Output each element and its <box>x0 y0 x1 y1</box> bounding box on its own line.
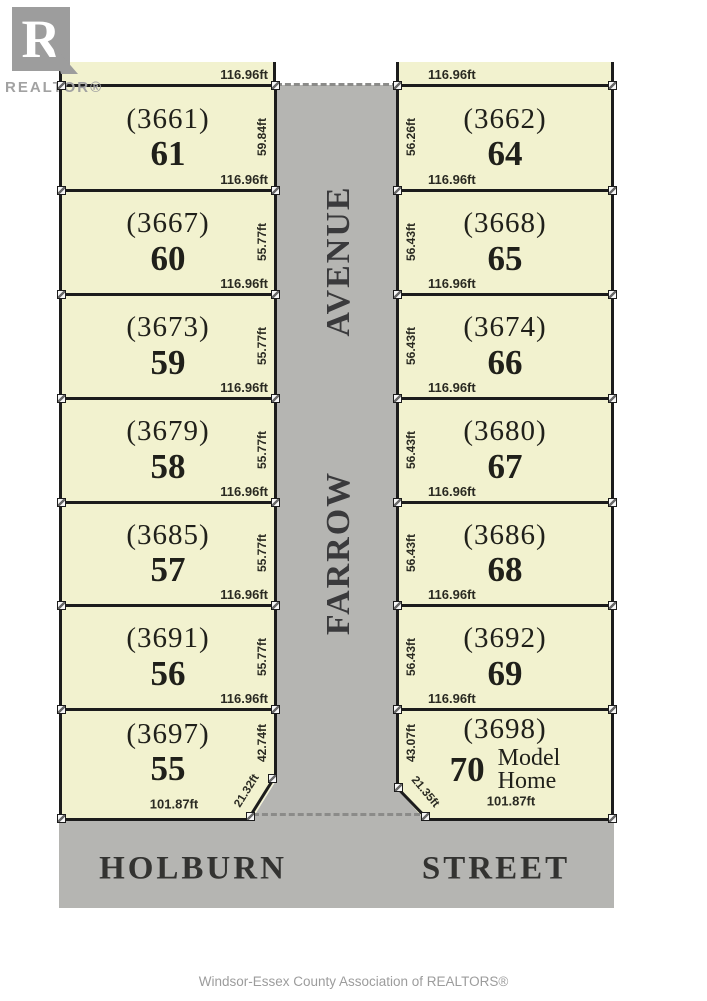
lot-plan: (3662) <box>463 104 546 134</box>
survey-pin-icon <box>271 290 280 299</box>
depth-dim: 55.77ft <box>251 192 273 292</box>
lot-plan: (3679) <box>126 416 209 446</box>
lot-plan: (3667) <box>126 208 209 238</box>
lot-plan: (3686) <box>463 520 546 550</box>
lot-plan: (3697) <box>126 719 209 749</box>
frontage-dim: 116.96ft <box>428 691 588 706</box>
depth-dim: 56.43ft <box>400 504 422 603</box>
survey-pin-icon <box>608 186 617 195</box>
survey-pin-icon <box>393 394 402 403</box>
depth-dim: 55.77ft <box>251 504 273 603</box>
survey-pin-icon <box>271 186 280 195</box>
survey-pin-icon <box>393 81 402 90</box>
survey-pin-icon <box>608 601 617 610</box>
lot-plan: (3685) <box>126 520 209 550</box>
frontage-dim: 116.96ft <box>428 380 588 395</box>
lot-number: 56 <box>151 656 186 693</box>
survey-pin-icon <box>271 81 280 90</box>
depth-dim: 43.07ft <box>400 710 422 776</box>
lot-number: 57 <box>151 552 186 589</box>
survey-pin-icon <box>57 705 66 714</box>
depth-dim: 59.84ft <box>251 87 273 188</box>
lot-number: 55 <box>151 751 186 788</box>
footer-credit: Windsor-Essex County Association of REAL… <box>0 974 707 989</box>
survey-pin-icon <box>57 601 66 610</box>
survey-pin-icon <box>393 498 402 507</box>
street-name-street: STREET <box>422 851 570 888</box>
bottom-dim: 101.87ft <box>150 797 198 812</box>
frontage-dim: 116.96ft <box>64 276 268 291</box>
depth-dim: 42.74ft <box>251 710 273 776</box>
survey-pin-icon <box>394 783 403 792</box>
survey-pin-icon <box>608 290 617 299</box>
plat-map: (3661) 61 (3667) 60 (3673) 59 (3679) 58 … <box>0 0 707 1001</box>
survey-pin-icon <box>608 81 617 90</box>
depth-dim: 56.43ft <box>400 400 422 500</box>
road-dashed-line-top <box>276 83 398 86</box>
survey-pin-icon <box>57 186 66 195</box>
frontage-dim: 116.96ft <box>64 484 268 499</box>
depth-dim: 56.43ft <box>400 607 422 707</box>
frontage-dim: 116.96ft <box>64 172 268 187</box>
lot-number: 61 <box>151 136 186 173</box>
model-home-note: ModelHome <box>498 747 561 793</box>
realtor-wordmark: REALTOR® <box>5 79 103 96</box>
road-dashed-line-bottom <box>253 813 429 816</box>
survey-pin-icon <box>57 498 66 507</box>
survey-pin-icon <box>393 186 402 195</box>
survey-pin-icon <box>57 81 66 90</box>
survey-pin-icon <box>608 814 617 823</box>
lot-number: 60 <box>151 241 186 278</box>
lot-plan: (3691) <box>126 623 209 653</box>
frontage-dim: 116.96ft <box>64 380 268 395</box>
lot-plan: (3673) <box>126 312 209 342</box>
survey-pin-icon <box>57 394 66 403</box>
survey-pin-icon <box>608 498 617 507</box>
realtor-logo-letter: R <box>22 12 61 66</box>
survey-pin-icon <box>393 705 402 714</box>
frontage-dim: 116.96ft <box>428 172 588 187</box>
survey-pin-icon <box>57 290 66 299</box>
frontage-dim: 116.96ft <box>428 484 588 499</box>
lot-number: 67 <box>488 449 523 486</box>
depth-dim: 55.77ft <box>251 296 273 396</box>
lot-plan: (3661) <box>126 104 209 134</box>
depth-dim: 56.43ft <box>400 296 422 396</box>
lot-plan: (3680) <box>463 416 546 446</box>
survey-pin-icon <box>271 498 280 507</box>
depth-dim: 56.26ft <box>400 87 422 188</box>
depth-dim: 55.77ft <box>251 607 273 707</box>
bottom-dim: 101.87ft <box>487 794 535 809</box>
frontage-dim: 116.96ft <box>428 276 588 291</box>
lot-number: 64 <box>488 136 523 173</box>
survey-pin-icon <box>608 705 617 714</box>
lot-plan: (3674) <box>463 312 546 342</box>
lot-plan: (3698) <box>463 714 546 744</box>
survey-pin-icon <box>608 394 617 403</box>
lot-number: 68 <box>488 552 523 589</box>
survey-pin-icon <box>268 774 277 783</box>
lot-plan: (3692) <box>463 623 546 653</box>
survey-pin-icon <box>271 705 280 714</box>
street-name-farrow: FARROW <box>320 471 358 635</box>
frontage-dim: 116.96ft <box>64 587 268 602</box>
survey-pin-icon <box>271 394 280 403</box>
depth-dim: 56.43ft <box>400 192 422 292</box>
lot-number: 59 <box>151 345 186 382</box>
street-name-holburn: HOLBURN <box>99 851 287 888</box>
frontage-dim: 116.96ft <box>428 67 588 82</box>
survey-pin-icon <box>271 601 280 610</box>
lot-plan: (3668) <box>463 208 546 238</box>
frontage-dim: 116.96ft <box>428 587 588 602</box>
depth-dim: 55.77ft <box>251 400 273 500</box>
survey-pin-icon <box>57 814 66 823</box>
survey-pin-icon <box>246 812 255 821</box>
lot-number: 65 <box>488 241 523 278</box>
survey-pin-icon <box>421 812 430 821</box>
survey-pin-icon <box>393 290 402 299</box>
survey-pin-icon <box>393 601 402 610</box>
lot-number: 58 <box>151 449 186 486</box>
frontage-dim: 116.96ft <box>64 691 268 706</box>
street-name-avenue: AVENUE <box>320 185 358 336</box>
lot-number: 69 <box>488 656 523 693</box>
lot-number: 70 <box>450 752 485 789</box>
lot-number: 66 <box>488 345 523 382</box>
